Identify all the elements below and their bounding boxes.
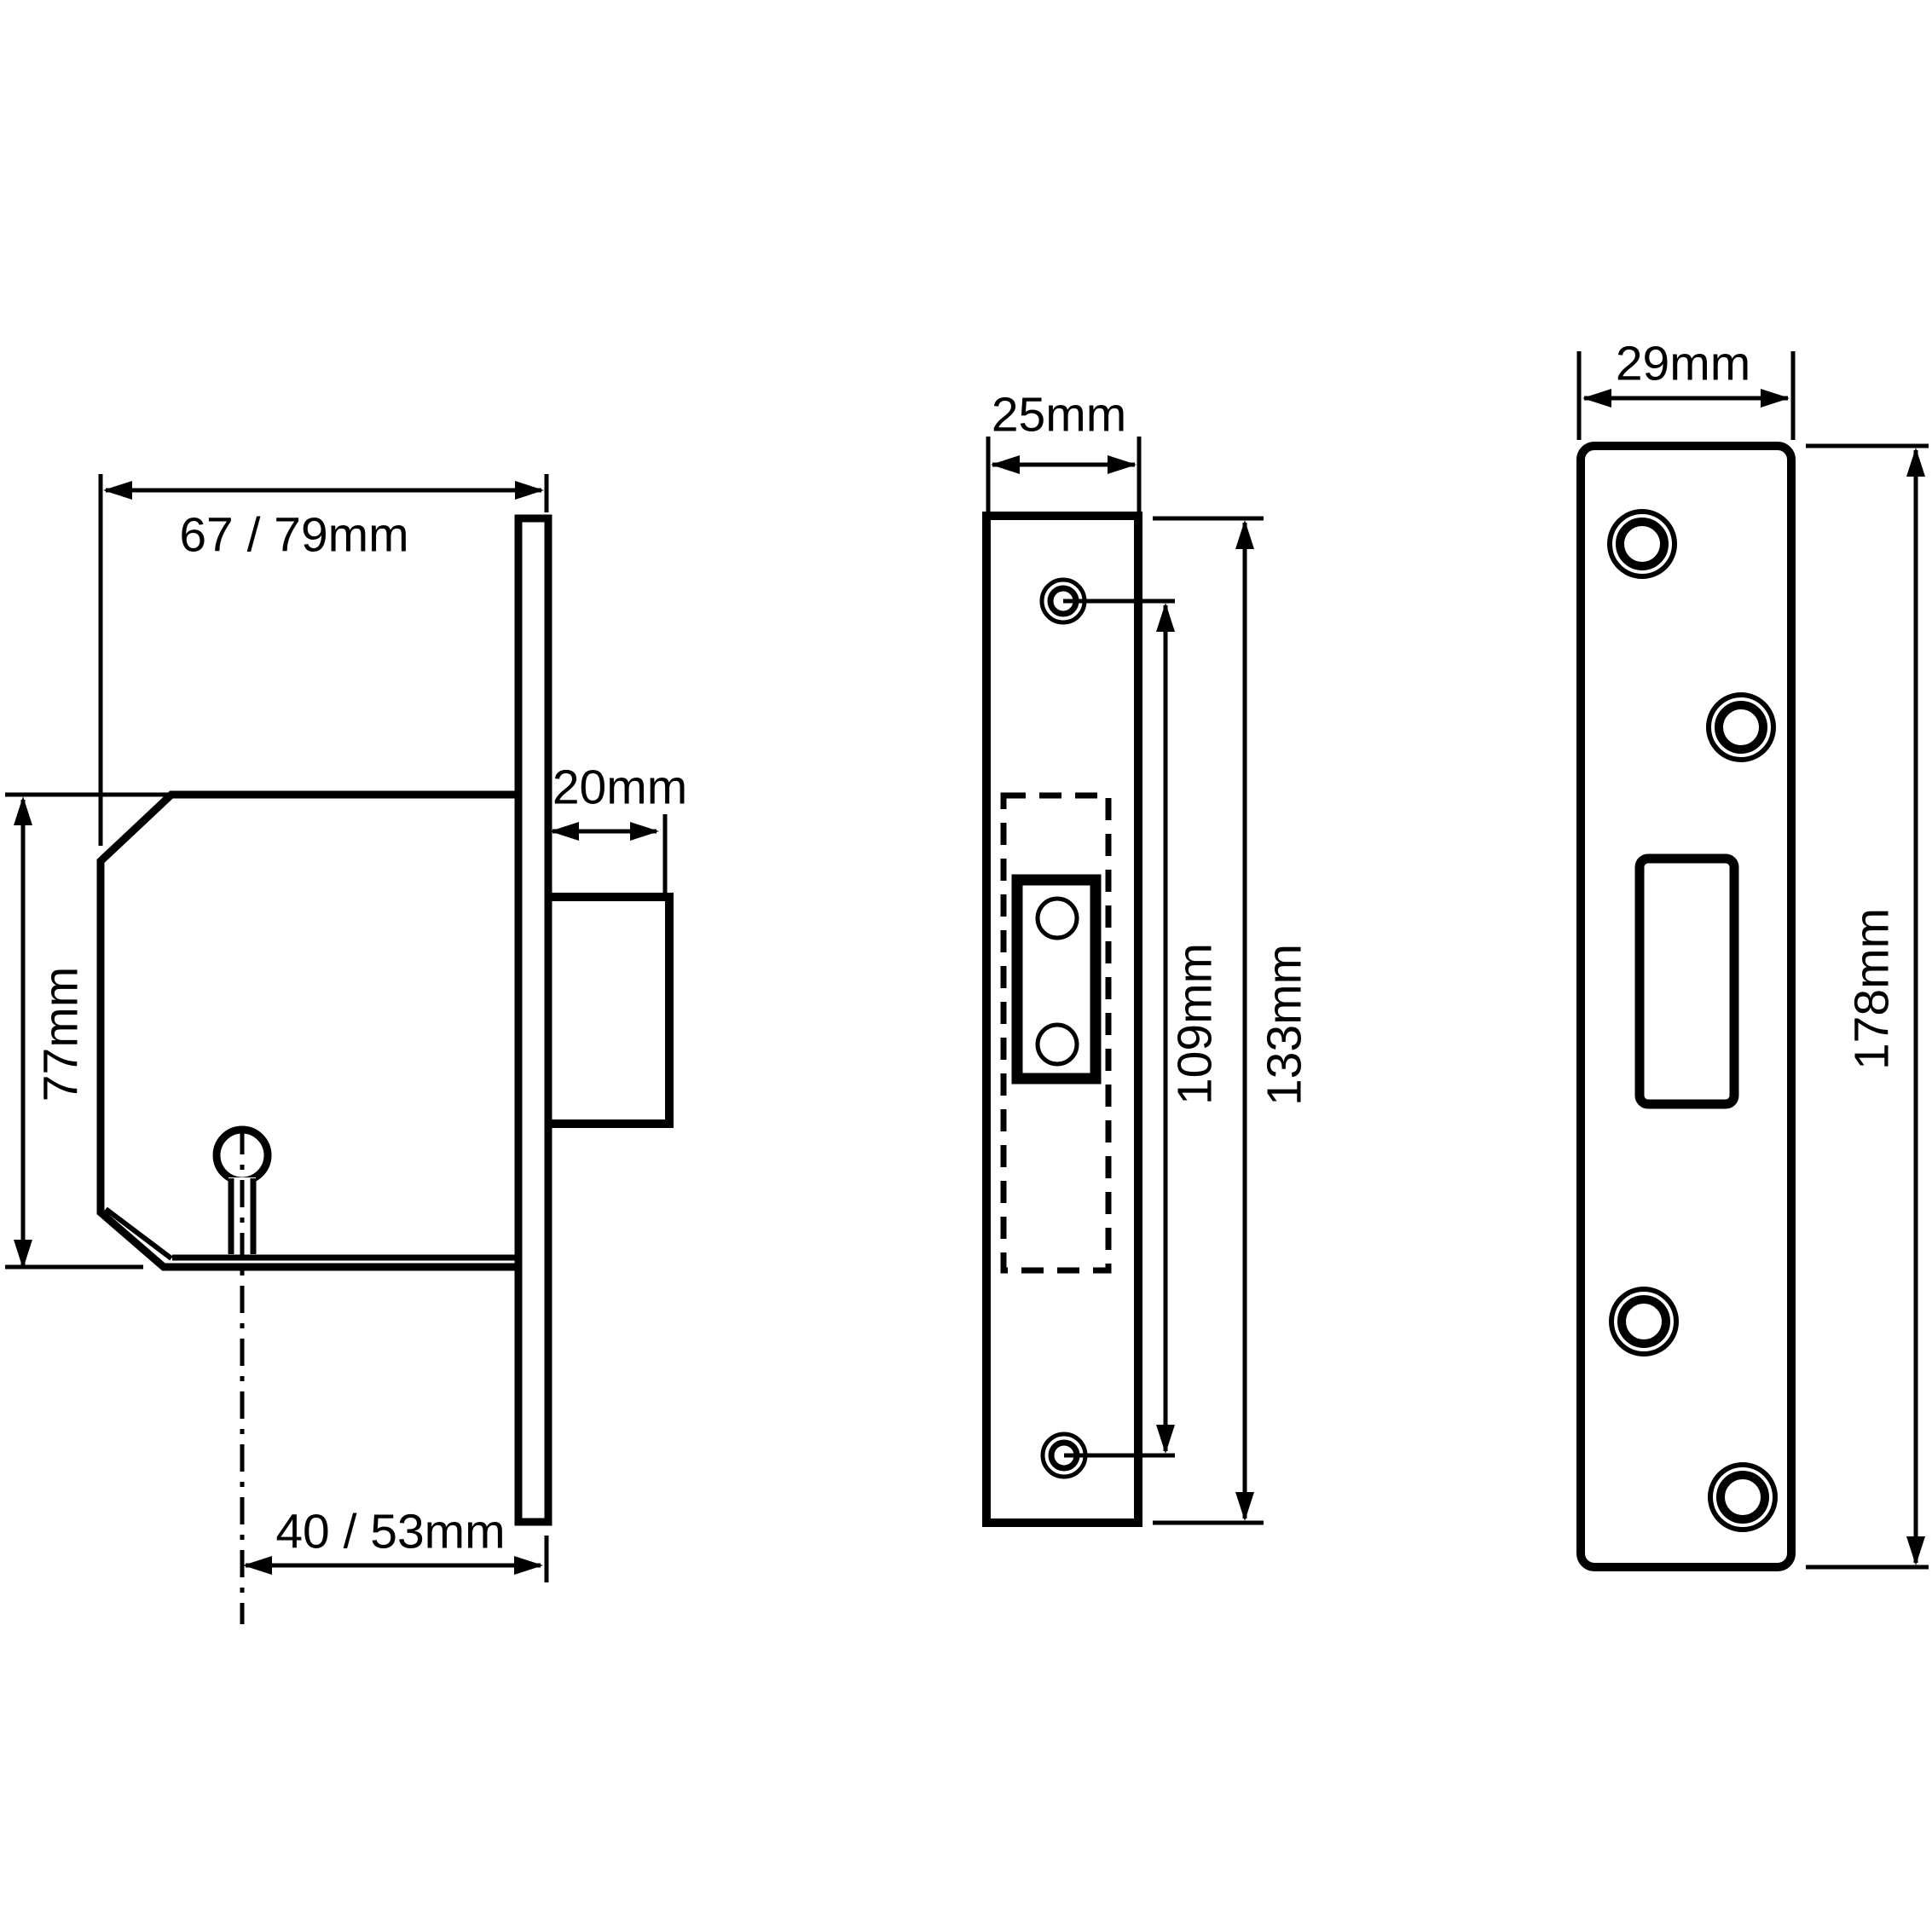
label-strike-height: 178mm [1848,908,1897,1070]
label-faceplate-width: 25mm [992,391,1126,440]
drawing-linework [0,0,1932,1932]
lock-case-outline [101,795,518,1267]
faceplate-side [518,518,548,1522]
label-strike-width: 29mm [1616,340,1750,389]
lock-dimension-drawing: 67 / 79mm 77mm 20mm 40 / 53mm 25mm 109mm… [0,0,1932,1932]
label-faceplate-height: 133mm [1261,944,1310,1106]
dim-faceplate-width [988,437,1139,512]
dim-bolt-throw [550,814,665,894]
strike-plate [1581,446,1791,1567]
label-case-width: 67 / 79mm [179,512,408,560]
label-backset: 40 / 53mm [275,1508,505,1557]
label-screw-centres: 109mm [1171,943,1220,1105]
deadbolt-side [547,897,669,1124]
label-case-height: 77mm [38,967,86,1102]
faceplate-front [986,516,1138,1523]
label-bolt-throw: 20mm [552,764,687,813]
